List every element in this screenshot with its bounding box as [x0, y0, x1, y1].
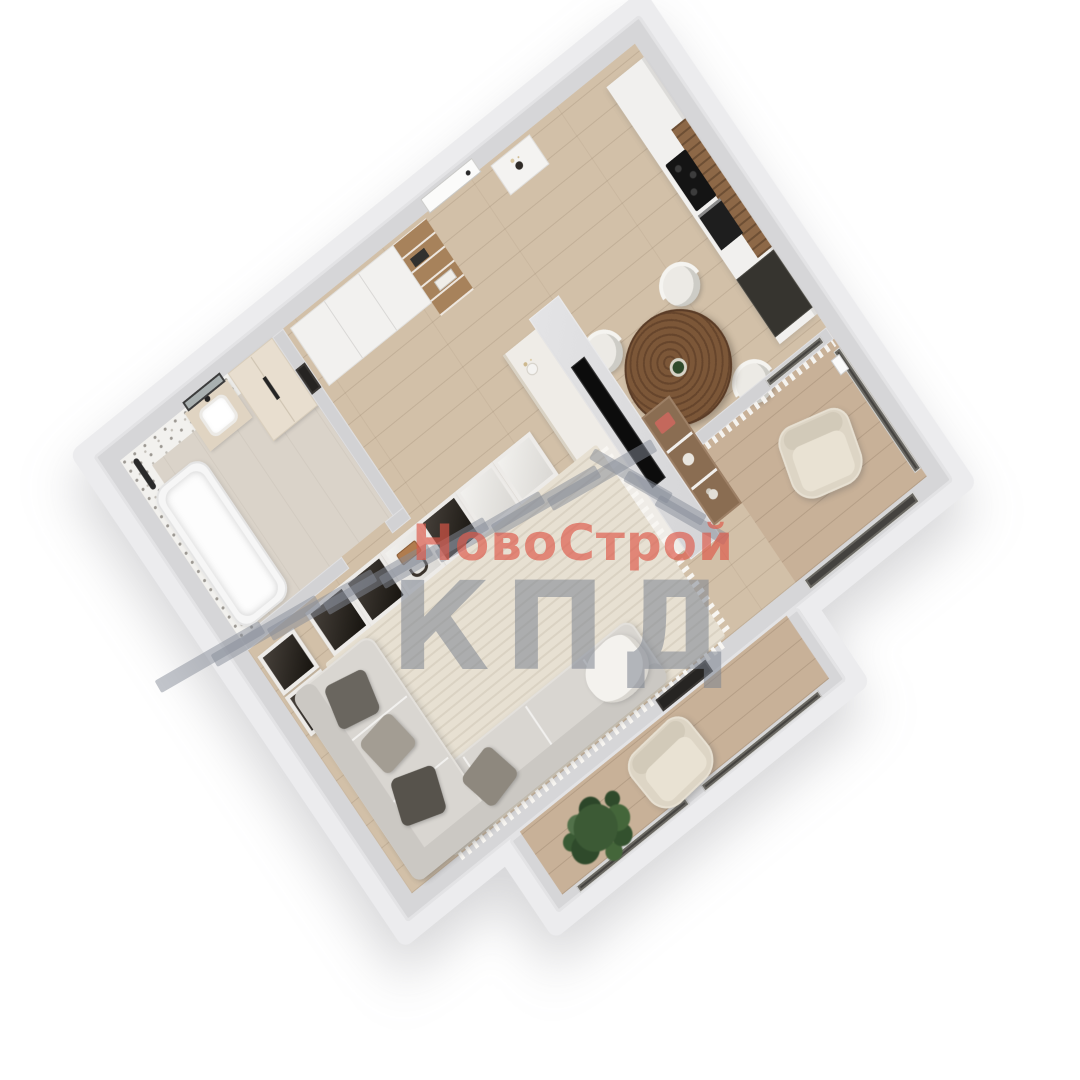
- books: [435, 270, 456, 290]
- apartment-3d-plan: [93, 14, 1003, 995]
- shelf-divider: [691, 468, 718, 491]
- decor-plant-sprig: [707, 487, 720, 502]
- table-decor: [666, 354, 690, 380]
- door-handle: [465, 169, 472, 176]
- books: [410, 248, 430, 268]
- decor-vase: [680, 450, 696, 468]
- shelf-divider: [666, 431, 693, 454]
- cabinet-handle: [262, 376, 280, 400]
- decor-red-box: [654, 411, 676, 434]
- vase-dried-flowers: [514, 160, 525, 172]
- console-plant: [526, 362, 539, 377]
- floorplan-render: НовоСтрой КПД: [0, 0, 1080, 1080]
- plant-foliage: [565, 794, 627, 861]
